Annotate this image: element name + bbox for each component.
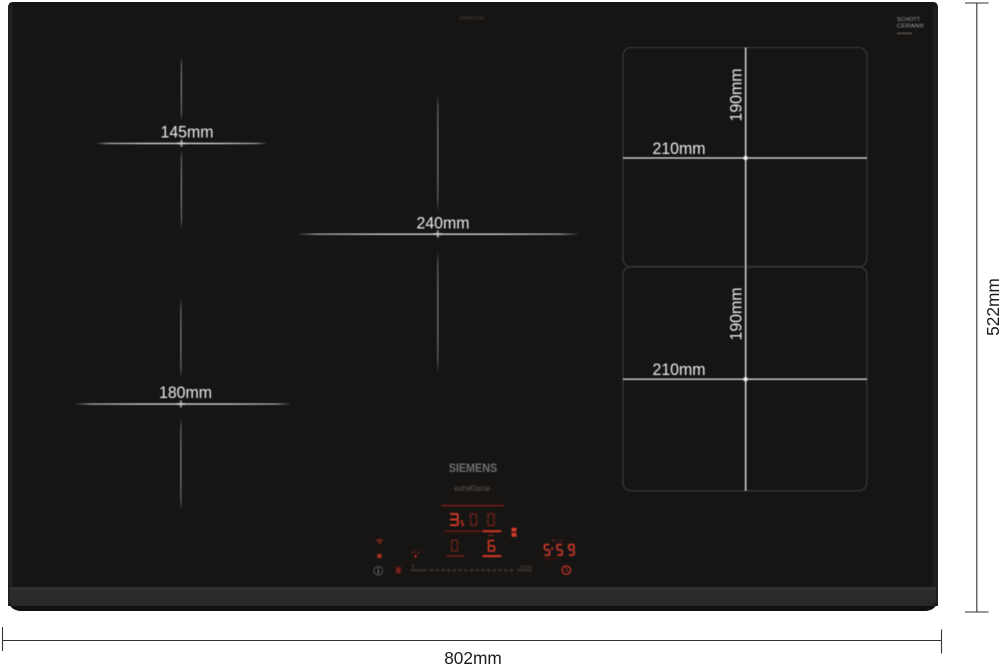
svg-text:240mm: 240mm: [417, 213, 470, 232]
svg-text:CERAN®: CERAN®: [897, 23, 924, 30]
svg-text:extraKlasse: extraKlasse: [455, 484, 491, 493]
svg-text:min: min: [552, 538, 564, 543]
svg-text:145mm: 145mm: [161, 123, 214, 142]
svg-text:190mm: 190mm: [726, 69, 745, 122]
svg-text:EX875LYC1E: EX875LYC1E: [460, 16, 485, 21]
svg-text:180mm: 180mm: [159, 383, 212, 402]
svg-text:210mm: 210mm: [653, 139, 706, 158]
svg-text:SIEMENS: SIEMENS: [449, 462, 498, 475]
svg-text:210mm: 210mm: [653, 360, 706, 379]
svg-text:522mm: 522mm: [983, 278, 1000, 336]
svg-text:0: 0: [412, 564, 415, 569]
svg-text:SCHOTT: SCHOTT: [897, 17, 921, 23]
svg-text:802mm: 802mm: [444, 648, 502, 664]
svg-text:boost: boost: [521, 564, 533, 569]
svg-text:190mm: 190mm: [726, 288, 745, 341]
